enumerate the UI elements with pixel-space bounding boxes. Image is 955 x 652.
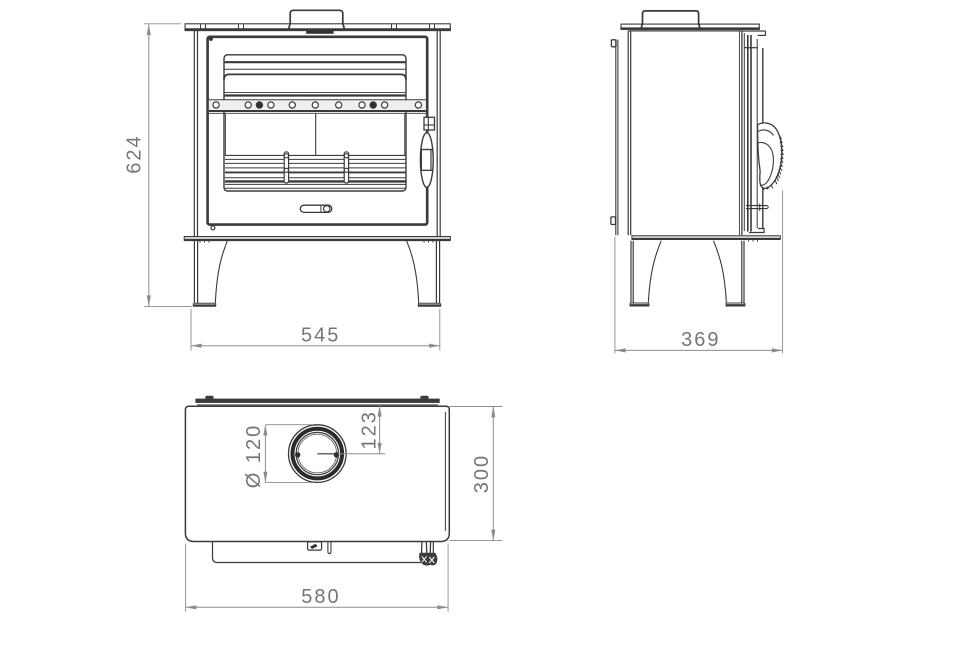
svg-text:624: 624 — [124, 134, 146, 173]
svg-text:300: 300 — [471, 454, 493, 493]
svg-text:545: 545 — [301, 324, 340, 346]
svg-text:369: 369 — [681, 329, 720, 351]
svg-text:Ø 120: Ø 120 — [243, 424, 265, 488]
svg-text:123: 123 — [358, 410, 380, 449]
svg-text:580: 580 — [301, 586, 340, 608]
